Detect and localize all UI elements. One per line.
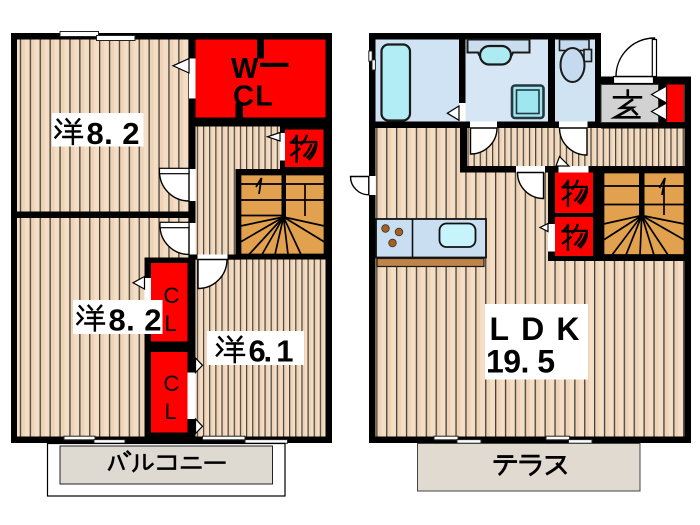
- svg-text:L: L: [165, 399, 177, 424]
- svg-text:19. 5: 19. 5: [486, 344, 555, 380]
- svg-text:CL: CL: [233, 81, 273, 113]
- svg-text:8. 2: 8. 2: [109, 303, 162, 338]
- svg-text:8. 2: 8. 2: [87, 116, 140, 151]
- svg-text:C: C: [164, 371, 180, 396]
- svg-text:L: L: [165, 311, 177, 336]
- svg-text:C: C: [164, 283, 180, 308]
- svg-text:LDK: LDK: [490, 311, 580, 347]
- svg-text:6. 1: 6. 1: [249, 334, 294, 369]
